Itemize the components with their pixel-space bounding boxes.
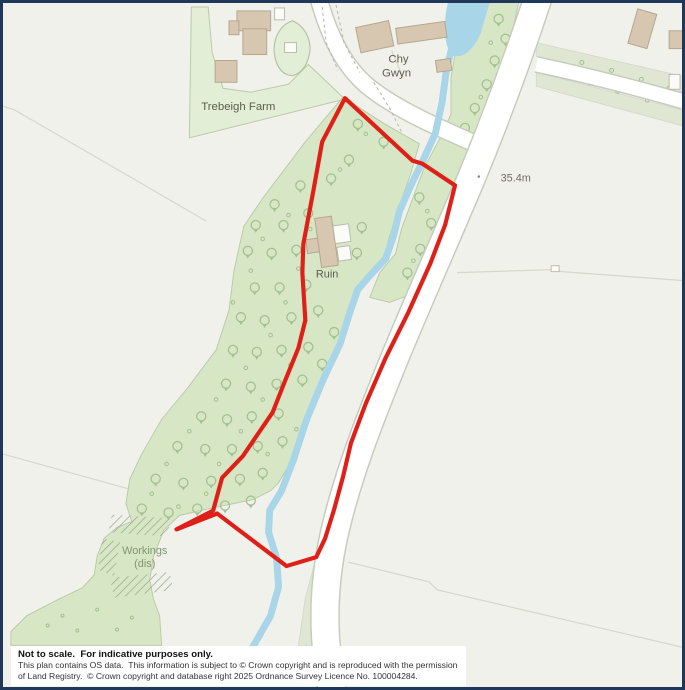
- label-gwyn: Gwyn: [382, 67, 411, 79]
- label-workings-dis: (dis): [134, 558, 155, 570]
- disclaimer-line3: of Land Registry. © Crown copyright and …: [18, 671, 457, 682]
- map-canvas: Trebeigh Farm Chy Gwyn Ruin 35.4m Workin…: [3, 3, 682, 687]
- label-chy: Chy: [388, 53, 409, 65]
- disclaimer-line1: Not to scale. For indicative purposes on…: [18, 649, 457, 660]
- label-spot-height: 35.4m: [501, 172, 531, 184]
- disclaimer-line2: This plan contains OS data. This informa…: [18, 660, 457, 671]
- disclaimer-box: Not to scale. For indicative purposes on…: [11, 646, 466, 686]
- label-trebeigh-farm: Trebeigh Farm: [201, 101, 275, 113]
- gate-symbol: [551, 266, 559, 272]
- label-workings: Workings: [122, 545, 168, 557]
- label-ruin: Ruin: [316, 269, 338, 281]
- title-plan-frame: Trebeigh Farm Chy Gwyn Ruin 35.4m Workin…: [0, 0, 685, 690]
- spot-height-marker: [478, 175, 481, 178]
